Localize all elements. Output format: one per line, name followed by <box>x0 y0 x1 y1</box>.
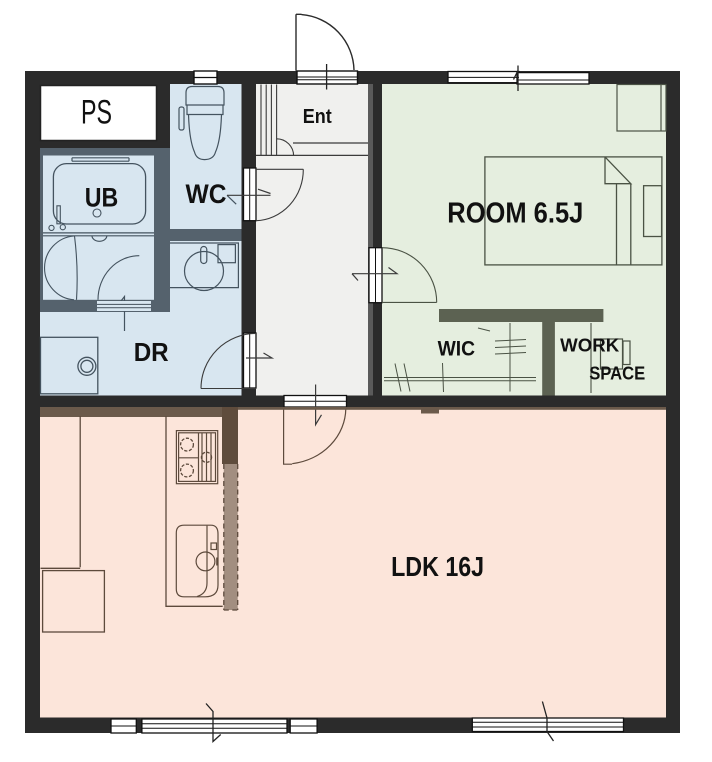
svg-text:UB: UB <box>85 182 119 212</box>
svg-text:WORK: WORK <box>560 335 619 355</box>
svg-text:DR: DR <box>134 337 169 367</box>
svg-text:WIC: WIC <box>438 337 476 360</box>
svg-text:WC: WC <box>186 179 227 209</box>
svg-text:ROOM 6.5J: ROOM 6.5J <box>447 197 583 229</box>
svg-text:Ent: Ent <box>303 106 332 128</box>
svg-text:PS: PS <box>81 94 112 132</box>
svg-text:LDK 16J: LDK 16J <box>391 551 484 582</box>
svg-text:SPACE: SPACE <box>589 363 645 383</box>
